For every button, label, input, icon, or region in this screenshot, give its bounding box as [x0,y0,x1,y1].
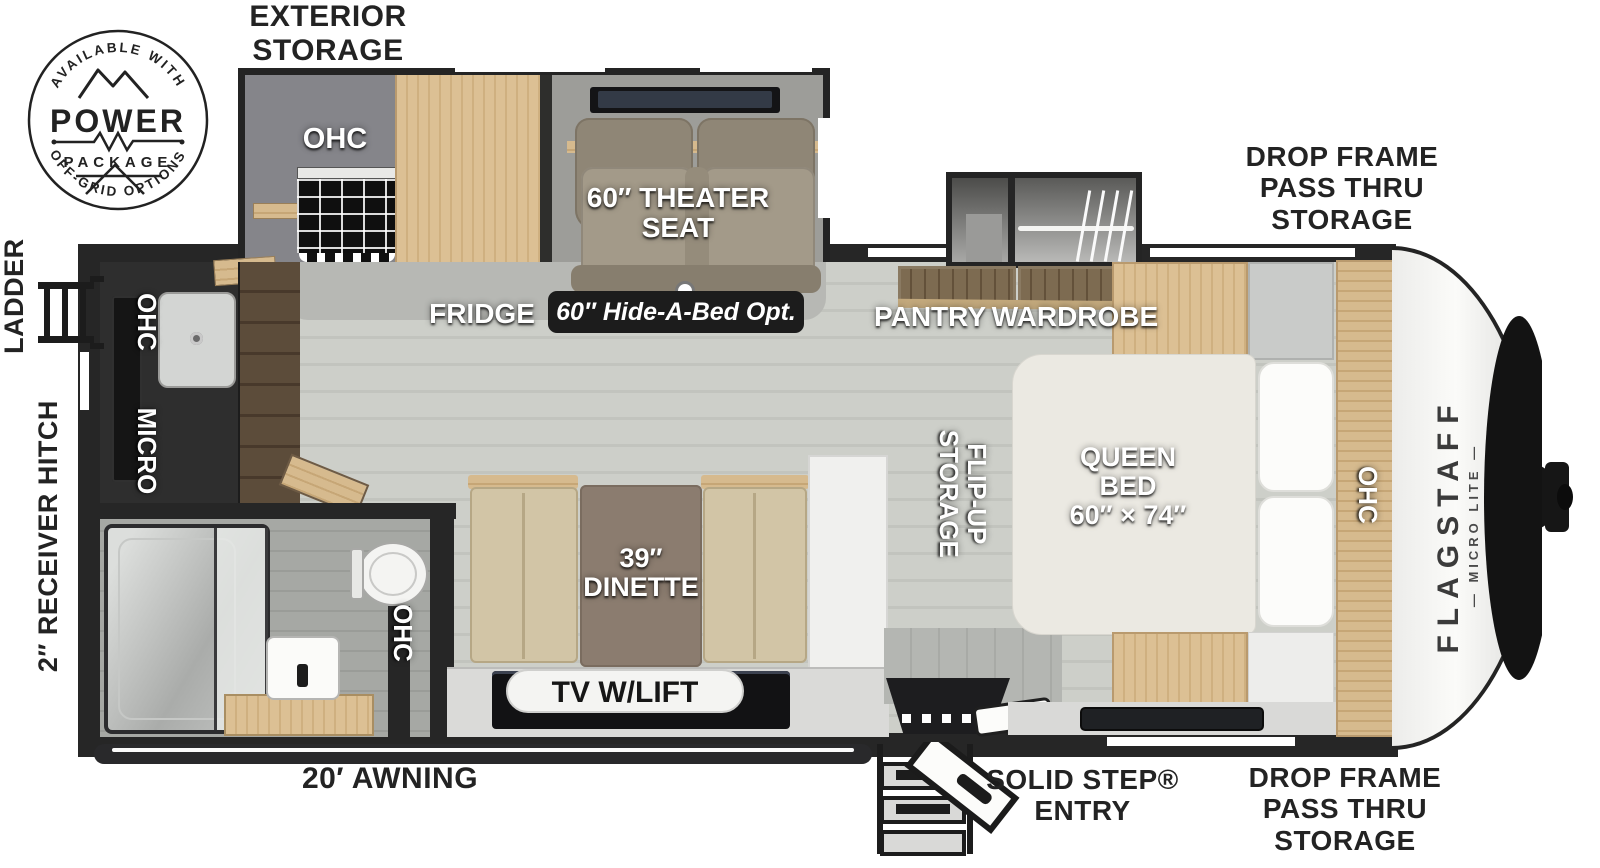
pillow [1258,362,1334,492]
label-pantry: PANTRY [870,302,990,332]
bed-foot-panel [1248,632,1334,704]
vanity-counter [224,694,374,736]
label-theater-seat: 60″ THEATER SEAT [558,183,798,243]
window-bottom-1 [1107,737,1295,746]
entry-mat [1080,707,1264,731]
label-micro: MICRO [132,391,160,511]
label-receiver-hitch: 2″ RECEIVER HITCH [33,386,63,686]
bed-cabinet-top [1248,262,1334,360]
label-wardrobe: WARDROBE [985,302,1165,332]
label-ladder: LADDER [0,236,29,356]
fridge-unit [540,75,552,262]
awning-highlight [112,748,854,752]
label-tv-lift: TV W/LIFT [552,676,699,709]
pill-tv-lift: TV W/LIFT [506,669,744,713]
label-drop-frame-bottom: DROP FRAME PASS THRU STORAGE [1245,762,1445,856]
label-ohc-rear: OHC [132,282,160,362]
awning-rail [94,744,872,764]
tv-bedroomside-icon [590,87,780,113]
label-hide-a-bed: 60″ Hide-A-Bed Opt. [556,298,796,326]
label-queen-bed: QUEEN BED 60″ × 74″ [1023,443,1233,530]
stove-icon [297,167,397,263]
slide-window-2 [700,62,812,72]
kitchen-counter [395,75,540,262]
pill-hide-a-bed: 60″ Hide-A-Bed Opt. [548,291,804,333]
toilet-tank [350,548,364,600]
label-solid-step: SOLID STEP® ENTRY [985,764,1180,827]
mountains-icon [79,70,148,98]
pillow [1258,496,1334,627]
label-dinette: 39″ DINETTE [551,544,731,602]
faucet-icon [190,332,203,345]
label-ohc-bath: OHC [388,593,416,673]
ladder-icon [36,276,106,352]
brand-sub: — MICRO LITE — [1466,325,1482,725]
label-awning: 20′ AWNING [265,762,515,796]
label-flip-up-storage: FLIP-UP STORAGE [934,419,990,569]
wardrobe-divider [1008,178,1015,262]
label-fridge: FRIDGE [422,299,542,329]
brand-logo: FLAGSTAFF — MICRO LITE — [1432,325,1492,725]
power-package-badge: AVAILABLE WITH POWER PACKAGE OFF-GRID OP… [22,20,214,220]
closet-rod [1018,226,1134,231]
label-ohc-bed: OHC [1353,455,1381,535]
label-exterior-storage: EXTERIOR STORAGE [228,0,428,67]
wardrobe-box [946,172,1142,268]
label-ohc-slide: OHC [275,124,395,155]
slide-window-1 [455,62,605,72]
vanity-faucet-icon [297,664,308,687]
window-top-2 [1150,248,1355,257]
rear-window [80,352,89,410]
slide-window-side [818,118,831,218]
floorplan-canvas: { "badge": { "top_arc": "AVAILABLE WITH"… [0,0,1600,868]
brand-name: FLAGSTAFF [1432,325,1466,725]
label-drop-frame-top: DROP FRAME PASS THRU STORAGE [1242,141,1442,235]
dresser-bed-foot [1112,632,1248,710]
